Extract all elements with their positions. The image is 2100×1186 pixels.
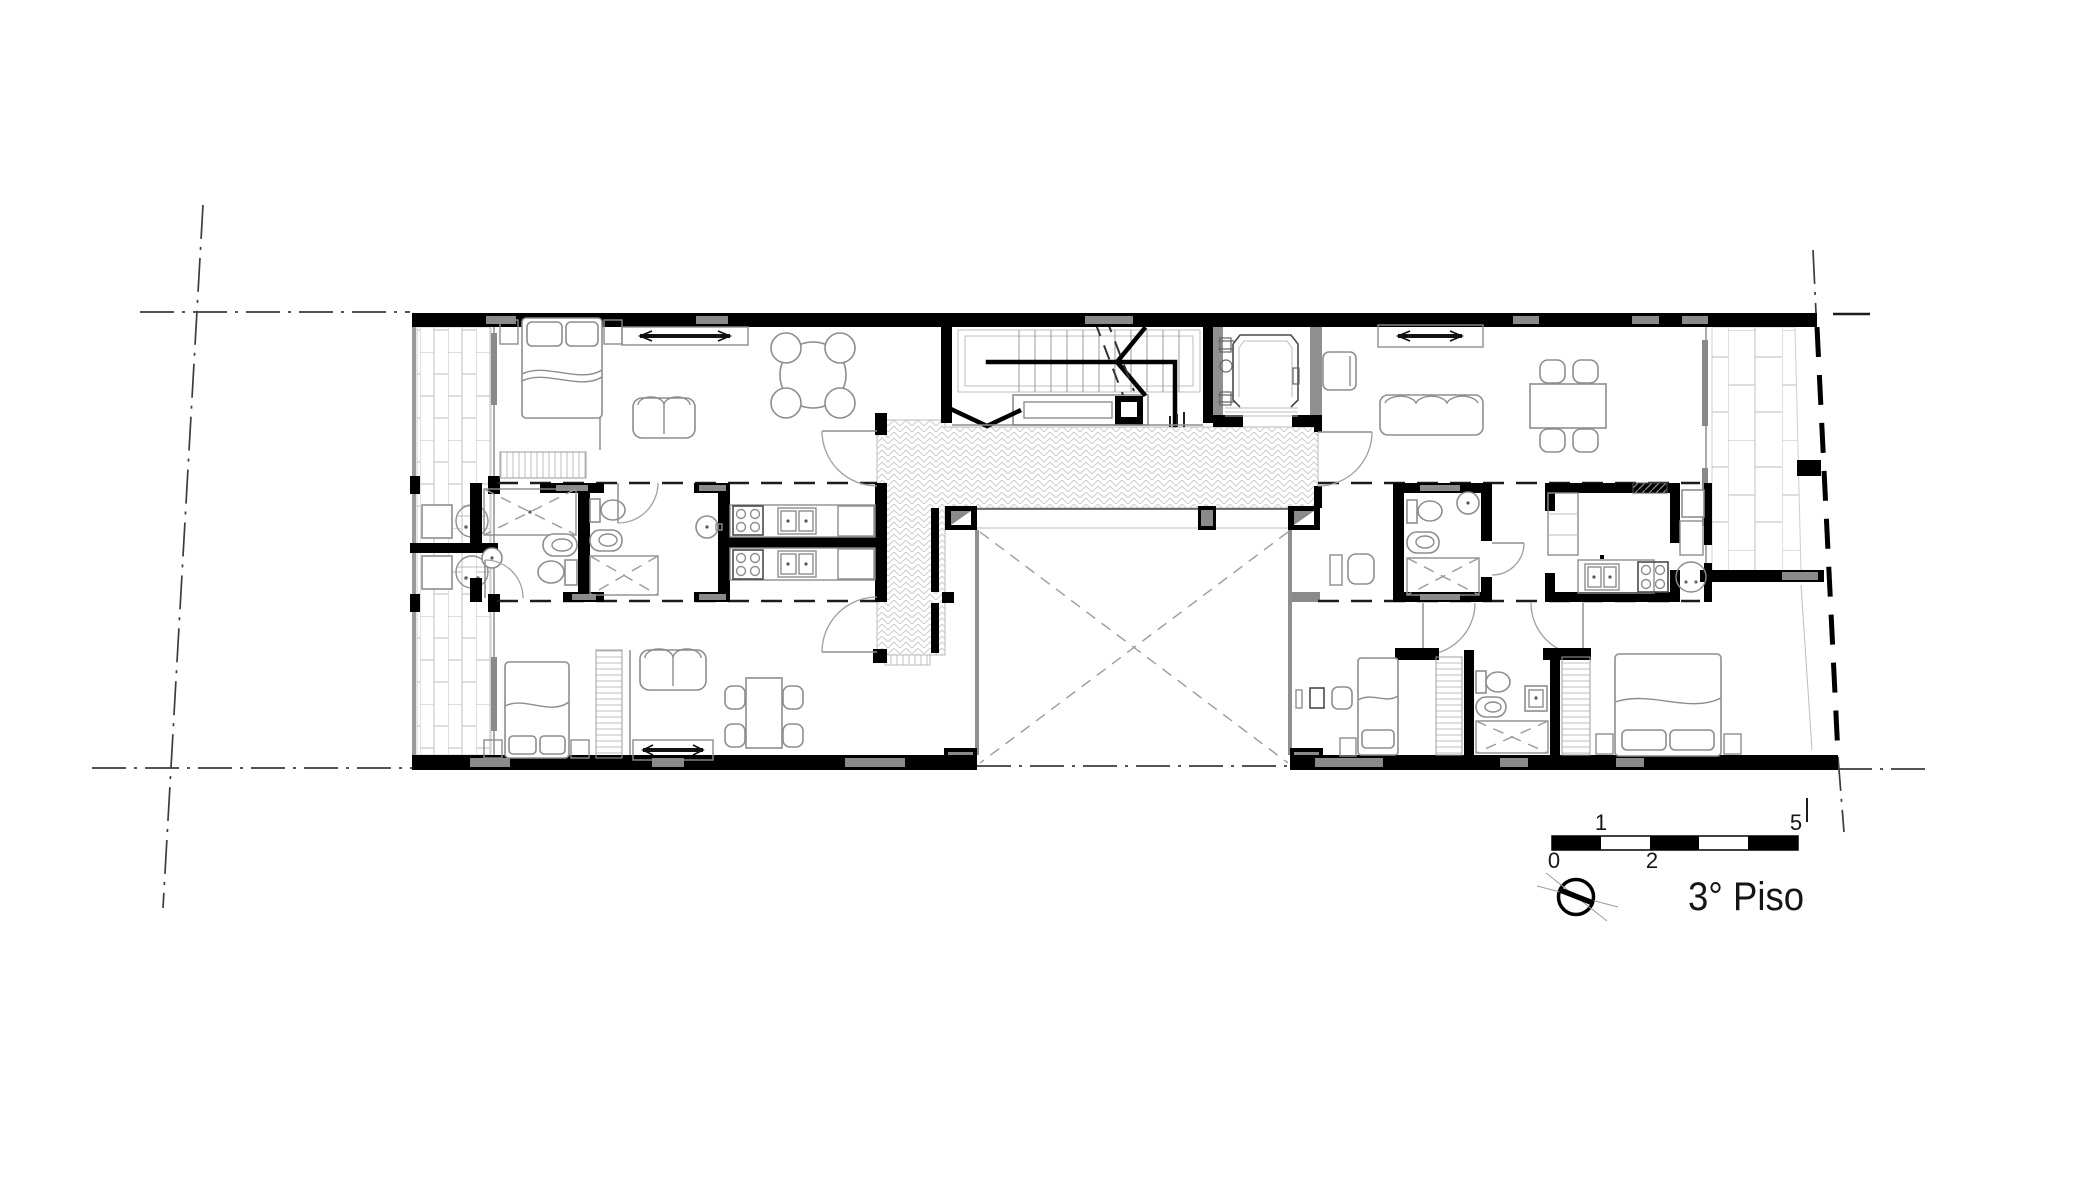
elevator-car [1225, 335, 1298, 416]
toilet-icon [1407, 500, 1442, 523]
floor-grate [885, 655, 930, 665]
kitchen-right [1545, 483, 1680, 602]
right-boundary-rail [1817, 327, 1838, 755]
scale-label-2: 2 [1646, 848, 1658, 873]
scale-bar: 1 5 0 2 [1548, 798, 1807, 873]
scale-label-0: 0 [1548, 848, 1560, 873]
stove-icon [733, 506, 763, 535]
kitchen-sink-icon [778, 508, 816, 534]
floor-plan-title: 3° Piso [1688, 875, 1804, 919]
bidet-icon [543, 534, 577, 556]
loveseat-sofa [633, 397, 695, 438]
wardrobe [1562, 657, 1590, 755]
void-column-left [945, 506, 977, 530]
left-band [470, 483, 887, 602]
bathroom-right-unit [1407, 492, 1524, 595]
entry-door-lower-left [822, 597, 877, 652]
wardrobe [596, 650, 622, 758]
corridor-doors [1423, 603, 1583, 655]
stair-core [941, 318, 1213, 427]
lower-right-rooms [1296, 603, 1741, 756]
toilet-icon [590, 499, 625, 522]
desk-computer [1296, 687, 1352, 709]
hallway-herringbone [877, 420, 1318, 665]
kitchen-sink-icon [1585, 564, 1619, 590]
floor-plan-drawing: 1 5 0 2 3° Piso [0, 0, 2100, 1186]
balcony-laundry-right [1676, 483, 1712, 602]
kitchen-sink-icon [778, 551, 816, 577]
entry-door-upper-left [822, 431, 877, 486]
scale-label-1: 1 [1595, 810, 1607, 835]
dining-table [725, 678, 803, 748]
round-sink-icon [1457, 492, 1479, 514]
unit-upper-right [1323, 325, 1606, 452]
toilet-icon [1476, 671, 1510, 693]
bottom-wall [412, 755, 1838, 770]
wardrobe [1436, 657, 1462, 755]
armchair [1323, 352, 1356, 390]
elevator [1213, 327, 1322, 427]
property-lines [92, 205, 1928, 908]
right-band [1330, 483, 1712, 602]
double-bed [1596, 654, 1741, 756]
left-balcony [410, 327, 500, 755]
legend: 1 5 0 2 3° Piso [1537, 798, 1807, 921]
scale-label-5: 5 [1790, 810, 1802, 835]
stove-icon [1638, 562, 1668, 592]
sofa-three-seat [1380, 395, 1483, 435]
floor-plan-canvas: 1 5 0 2 3° Piso [0, 0, 2100, 1186]
desk-nook [1330, 554, 1374, 585]
tv-console [622, 327, 748, 345]
double-bed [500, 318, 622, 418]
bathroom-upper-left-unit [590, 483, 722, 595]
double-bed [484, 662, 589, 758]
bidet-icon [1407, 532, 1439, 553]
unit-lower-left [484, 649, 803, 760]
wardrobe [500, 452, 586, 478]
loveseat-sofa [640, 649, 706, 690]
unit-upper-left [500, 318, 855, 478]
elevator-machinery [1218, 338, 1299, 405]
entry-door-right [1318, 432, 1372, 486]
bidet-icon [1476, 697, 1506, 717]
dining-table-six [1530, 360, 1606, 452]
void-column-right [1288, 506, 1320, 530]
top-wall [412, 313, 1817, 327]
north-arrow-icon [1537, 873, 1618, 921]
toilet-icon [538, 560, 577, 585]
bidet-icon [590, 530, 622, 551]
stove-icon [733, 550, 763, 579]
void-x-marker [980, 532, 1288, 763]
bathroom-lower-right [1476, 671, 1548, 753]
courtyard-void [942, 506, 1323, 770]
tv-console [1378, 325, 1483, 347]
round-dining-table [771, 333, 855, 418]
wall-sink-icon [1525, 686, 1547, 711]
